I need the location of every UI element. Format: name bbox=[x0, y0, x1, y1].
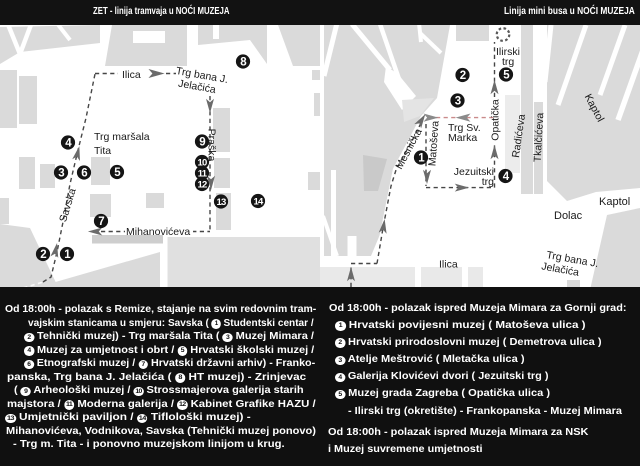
svg-text:6: 6 bbox=[81, 168, 87, 180]
svg-text:Ilica: Ilica bbox=[122, 69, 141, 81]
svg-text:Dolac: Dolac bbox=[554, 210, 583, 222]
svg-text:7: 7 bbox=[98, 216, 104, 228]
svg-text:trg: trg bbox=[502, 56, 514, 68]
svg-text:Marka: Marka bbox=[448, 132, 477, 144]
svg-text:2: 2 bbox=[460, 70, 466, 82]
svg-text:Savska: Savska bbox=[57, 187, 79, 224]
svg-text:12: 12 bbox=[198, 179, 207, 190]
svg-text:Matoševa: Matoševa bbox=[426, 120, 441, 166]
svg-text:Tita: Tita bbox=[94, 145, 111, 157]
svg-text:Opatička: Opatička bbox=[490, 99, 502, 141]
svg-text:3: 3 bbox=[58, 168, 64, 180]
svg-text:Trg maršala: Trg maršala bbox=[94, 131, 150, 143]
svg-text:trg: trg bbox=[482, 176, 494, 188]
svg-text:3: 3 bbox=[455, 96, 461, 108]
svg-text:2: 2 bbox=[40, 249, 46, 261]
svg-text:14: 14 bbox=[254, 196, 264, 207]
svg-text:Kaptol: Kaptol bbox=[599, 196, 630, 208]
svg-text:9: 9 bbox=[199, 137, 205, 149]
svg-text:Ilica: Ilica bbox=[439, 259, 458, 271]
svg-text:Tkalčićeva: Tkalčićeva bbox=[532, 112, 547, 162]
svg-text:13: 13 bbox=[217, 197, 226, 208]
svg-text:Mihanovićeva: Mihanovićeva bbox=[126, 226, 190, 238]
